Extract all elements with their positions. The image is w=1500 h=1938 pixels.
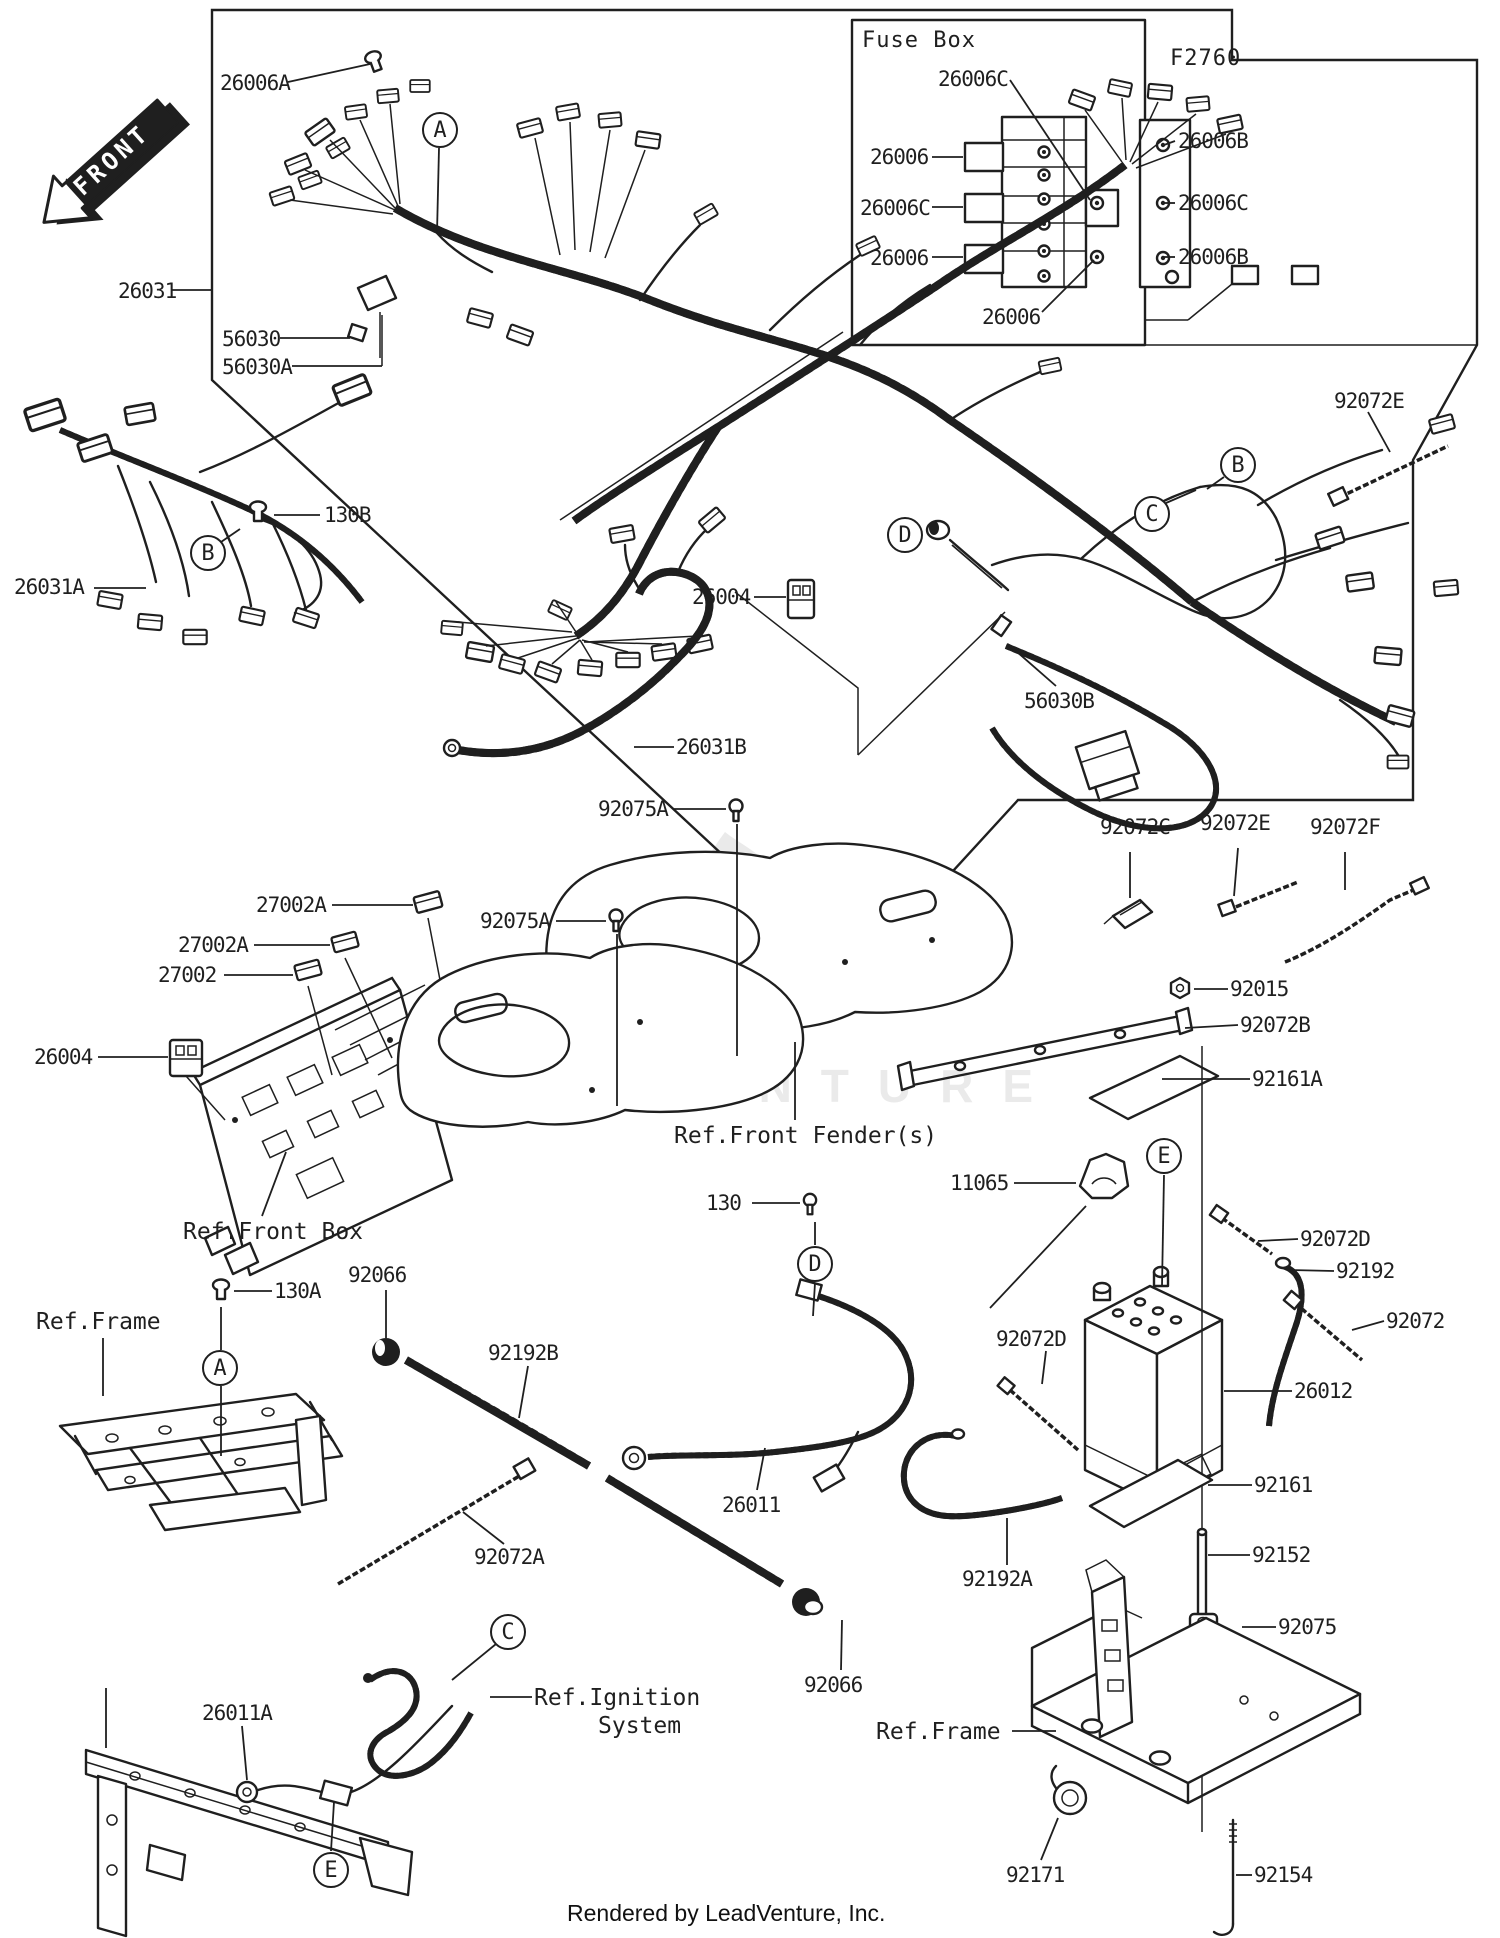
part-label-26004-23[interactable]: 26004 — [34, 1046, 92, 1068]
part-label-26006B-8[interactable]: 26006B — [1178, 130, 1248, 152]
part-label-92072-35[interactable]: 92072 — [1386, 1310, 1444, 1332]
part-label-92152-39[interactable]: 92152 — [1252, 1544, 1310, 1566]
part-label-26011-51[interactable]: 26011 — [722, 1494, 780, 1516]
callout-circle-E-9: E — [313, 1852, 349, 1888]
harness-26031A-drawing — [24, 374, 371, 644]
part-label-11065-26[interactable]: 11065 — [950, 1172, 1008, 1194]
callout-circle-B-2: B — [1220, 447, 1256, 483]
harness-26031B-drawing — [444, 507, 814, 756]
callout-circle-B-1: B — [190, 535, 226, 571]
part-label-130A-46[interactable]: 130A — [274, 1280, 321, 1302]
part-label-92072B-28[interactable]: 92072B — [1240, 1014, 1310, 1036]
part-label-130B-14[interactable]: 130B — [324, 504, 371, 526]
part-label-92192-34[interactable]: 92192 — [1336, 1260, 1394, 1282]
parts-diagram-page: LEADVENTURE FRONT — [0, 0, 1500, 1938]
part-label-92066-47[interactable]: 92066 — [348, 1264, 406, 1286]
part-label-26031B-17[interactable]: 26031B — [676, 736, 746, 758]
part-label-92072E-12[interactable]: 92072E — [1334, 390, 1404, 412]
part-label-92072A-49[interactable]: 92072A — [474, 1546, 544, 1568]
harness-boundary-box — [212, 10, 1477, 978]
part-label-92072E-31[interactable]: 92072E — [1200, 812, 1270, 834]
part-label-26004-15[interactable]: 26004 — [692, 586, 750, 608]
part-label-26031-1[interactable]: 26031 — [118, 280, 176, 302]
part-label-27002-22[interactable]: 27002 — [158, 964, 216, 986]
part-label-92075-40[interactable]: 92075 — [1278, 1616, 1336, 1638]
callout-circle-C-8: C — [490, 1614, 526, 1650]
part-label-27002A-21[interactable]: 27002A — [178, 934, 248, 956]
lower-frame-26011A-drawing — [86, 1671, 471, 1936]
part-label-System-55: System — [598, 1714, 681, 1738]
diagram-artwork: LEADVENTURE FRONT — [0, 0, 1500, 1938]
clip-92072C — [1104, 900, 1152, 928]
part-label-26006C-6[interactable]: 26006C — [860, 197, 930, 219]
part-label-92192A-41[interactable]: 92192A — [962, 1568, 1032, 1590]
part-label-130-50[interactable]: 130 — [706, 1192, 741, 1214]
connector-26004-left — [170, 1040, 202, 1076]
part-label-Ref-Ignition-54: Ref.Ignition — [534, 1686, 700, 1710]
diagram-code: F2760 — [1170, 46, 1241, 71]
part-label-26006-5[interactable]: 26006 — [870, 146, 928, 168]
part-label-92066-52[interactable]: 92066 — [804, 1674, 862, 1696]
part-label-Ref-Front-Box-24: Ref.Front Box — [183, 1220, 363, 1244]
front-arrow-icon: FRONT — [25, 85, 198, 250]
callout-circle-E-5: E — [1146, 1138, 1182, 1174]
callout-circle-D-6: D — [797, 1246, 833, 1282]
part-label-92075A-19[interactable]: 92075A — [480, 910, 550, 932]
part-label-26012-36[interactable]: 26012 — [1294, 1380, 1352, 1402]
part-label-92072D-33[interactable]: 92072D — [1300, 1228, 1370, 1250]
callout-circle-C-3: C — [1134, 496, 1170, 532]
front-frame-drawing — [60, 1394, 342, 1530]
fuse-box-title: Fuse Box — [862, 28, 976, 53]
tube-92192B-drawing — [338, 1338, 822, 1616]
part-label-92015-27[interactable]: 92015 — [1230, 978, 1288, 1000]
part-label-26006C-4[interactable]: 26006C — [938, 68, 1008, 90]
part-label-27002A-20[interactable]: 27002A — [256, 894, 326, 916]
part-label-26011A-53[interactable]: 26011A — [202, 1702, 272, 1724]
connector-26004-mid — [788, 580, 814, 618]
part-label-92161A-29[interactable]: 92161A — [1252, 1068, 1322, 1090]
part-label-56030A-3[interactable]: 56030A — [222, 356, 292, 378]
part-label-56030-2[interactable]: 56030 — [222, 328, 280, 350]
callout-circle-A-0: A — [422, 112, 458, 148]
render-credit: Rendered by LeadVenture, Inc. — [567, 1900, 885, 1927]
part-label-92072D-37[interactable]: 92072D — [996, 1328, 1066, 1350]
part-label-92154-44[interactable]: 92154 — [1254, 1864, 1312, 1886]
callout-circle-A-7: A — [202, 1350, 238, 1386]
part-label-92075A-18[interactable]: 92075A — [598, 798, 668, 820]
part-label-Ref-Frame-45: Ref.Frame — [36, 1310, 161, 1334]
part-label-Ref-Frame-42: Ref.Frame — [876, 1720, 1001, 1744]
part-label-92192B-48[interactable]: 92192B — [488, 1342, 558, 1364]
part-label-56030B-16[interactable]: 56030B — [1024, 690, 1094, 712]
part-label-26006C-9[interactable]: 26006C — [1178, 192, 1248, 214]
part-label-26006-11[interactable]: 26006 — [982, 306, 1040, 328]
part-label-92171-43[interactable]: 92171 — [1006, 1864, 1064, 1886]
part-label-92072F-32[interactable]: 92072F — [1310, 816, 1380, 838]
part-label-26006B-10[interactable]: 26006B — [1178, 246, 1248, 268]
part-label-26031A-13[interactable]: 26031A — [14, 576, 84, 598]
part-label-Ref-Front-Fender-s--25: Ref.Front Fender(s) — [674, 1124, 937, 1148]
part-label-26006A-0[interactable]: 26006A — [220, 72, 290, 94]
callout-circle-D-4: D — [887, 517, 923, 553]
part-label-26006-7[interactable]: 26006 — [870, 247, 928, 269]
part-label-92072C-30[interactable]: 92072C — [1100, 816, 1170, 838]
part-label-92161-38[interactable]: 92161 — [1254, 1474, 1312, 1496]
